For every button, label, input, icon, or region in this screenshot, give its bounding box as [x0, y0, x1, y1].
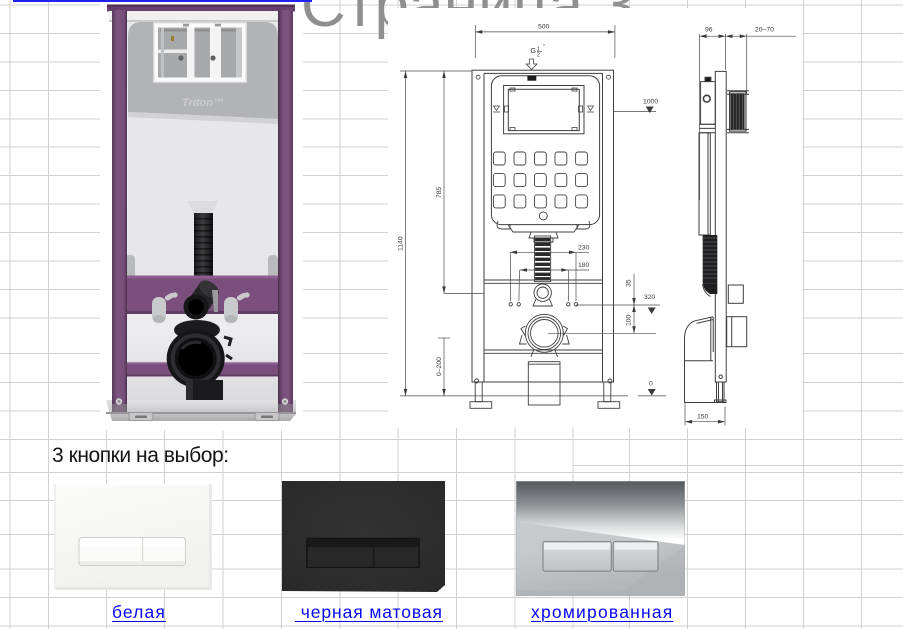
svg-text:2: 2 [537, 53, 540, 59]
svg-text:1140: 1140 [398, 236, 405, 251]
svg-text:180: 180 [578, 262, 590, 269]
svg-text:20–70: 20–70 [755, 27, 774, 34]
svg-text:0: 0 [649, 381, 653, 388]
svg-text:100: 100 [626, 314, 633, 326]
svg-text:″: ″ [543, 44, 545, 50]
svg-text:35: 35 [626, 279, 633, 287]
svg-text:Triton™: Triton™ [182, 97, 224, 109]
svg-text:G: G [530, 46, 536, 55]
svg-text:96: 96 [705, 27, 713, 34]
svg-text:0–200: 0–200 [436, 357, 443, 376]
svg-text:1000: 1000 [643, 99, 658, 106]
svg-text:785: 785 [436, 186, 443, 198]
svg-text:150: 150 [697, 414, 709, 421]
svg-text:500: 500 [538, 24, 550, 31]
svg-text:230: 230 [578, 245, 590, 252]
svg-text:320: 320 [644, 294, 656, 301]
